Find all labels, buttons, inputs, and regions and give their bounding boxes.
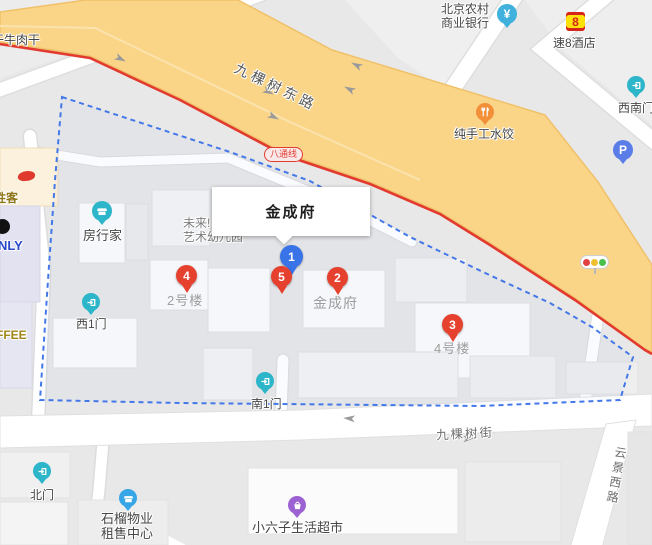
super8-hotel-logo-icon[interactable]: 8 — [566, 12, 585, 31]
traffic-light-icon — [580, 255, 609, 269]
parking-icon[interactable]: P — [613, 140, 633, 160]
poi-label-gate-west1[interactable]: 西1门 — [76, 315, 107, 332]
gate-west1-icon[interactable] — [82, 293, 100, 311]
poi-label-super8-hotel[interactable]: 速8酒店 — [553, 34, 596, 51]
poi-label-property-office[interactable]: 石榴物业租售中心 — [101, 511, 153, 541]
poi-label-realty-agency[interactable]: 房行家 — [83, 225, 122, 244]
info-bubble-title: 金成府 — [265, 201, 316, 222]
realty-agency-icon[interactable] — [92, 201, 112, 221]
supermarket-icon[interactable] — [288, 496, 306, 514]
gate-south1-icon[interactable] — [256, 372, 274, 390]
poi-label-pizza-hut[interactable]: 胜客 — [0, 189, 18, 206]
info-bubble-jinchengfu[interactable]: 金成府 — [212, 187, 370, 236]
road-label-jiukeshu-street: 九棵树街 — [436, 421, 495, 443]
map-marker-5[interactable]: 5 — [271, 266, 292, 287]
poi-label-coffee[interactable]: FFEE — [0, 328, 27, 342]
poi-label-bank[interactable]: 北京农村商业银行 — [441, 2, 489, 30]
poi-label-gate-north[interactable]: 北门 — [30, 486, 54, 503]
gate-southwest-icon[interactable] — [627, 76, 645, 94]
building-label-jinchengfu: 金成府 — [313, 293, 358, 313]
bank-icon[interactable]: ¥ — [497, 4, 517, 24]
map-marker-3[interactable]: 3 — [442, 314, 463, 335]
basemap — [0, 0, 652, 545]
gate-north-icon[interactable] — [33, 462, 51, 480]
poi-label-dumpling[interactable]: 纯手工水饺 — [454, 125, 514, 142]
dumpling-restaurant-icon[interactable] — [476, 103, 494, 121]
poi-label-only-store[interactable]: NLY — [0, 238, 23, 253]
map-marker-1[interactable]: 1 — [280, 245, 303, 268]
map-canvas[interactable]: 九棵树东路 九棵树街 云景西路 八通线 干牛肉干 北京农村商业银行 ¥ 8 速8… — [0, 0, 652, 545]
poi-label-beef-jerky[interactable]: 干牛肉干 — [0, 31, 40, 48]
poi-label-gate-southwest[interactable]: 西南门 — [618, 99, 652, 116]
map-marker-2[interactable]: 2 — [327, 267, 348, 288]
poi-label-supermarket[interactable]: 小六子生活超市 — [252, 517, 343, 536]
property-office-icon[interactable] — [119, 489, 137, 507]
poi-label-gate-south1[interactable]: 南1门 — [251, 395, 282, 412]
map-marker-4[interactable]: 4 — [176, 265, 197, 286]
subway-line-badge: 八通线 — [264, 147, 303, 162]
